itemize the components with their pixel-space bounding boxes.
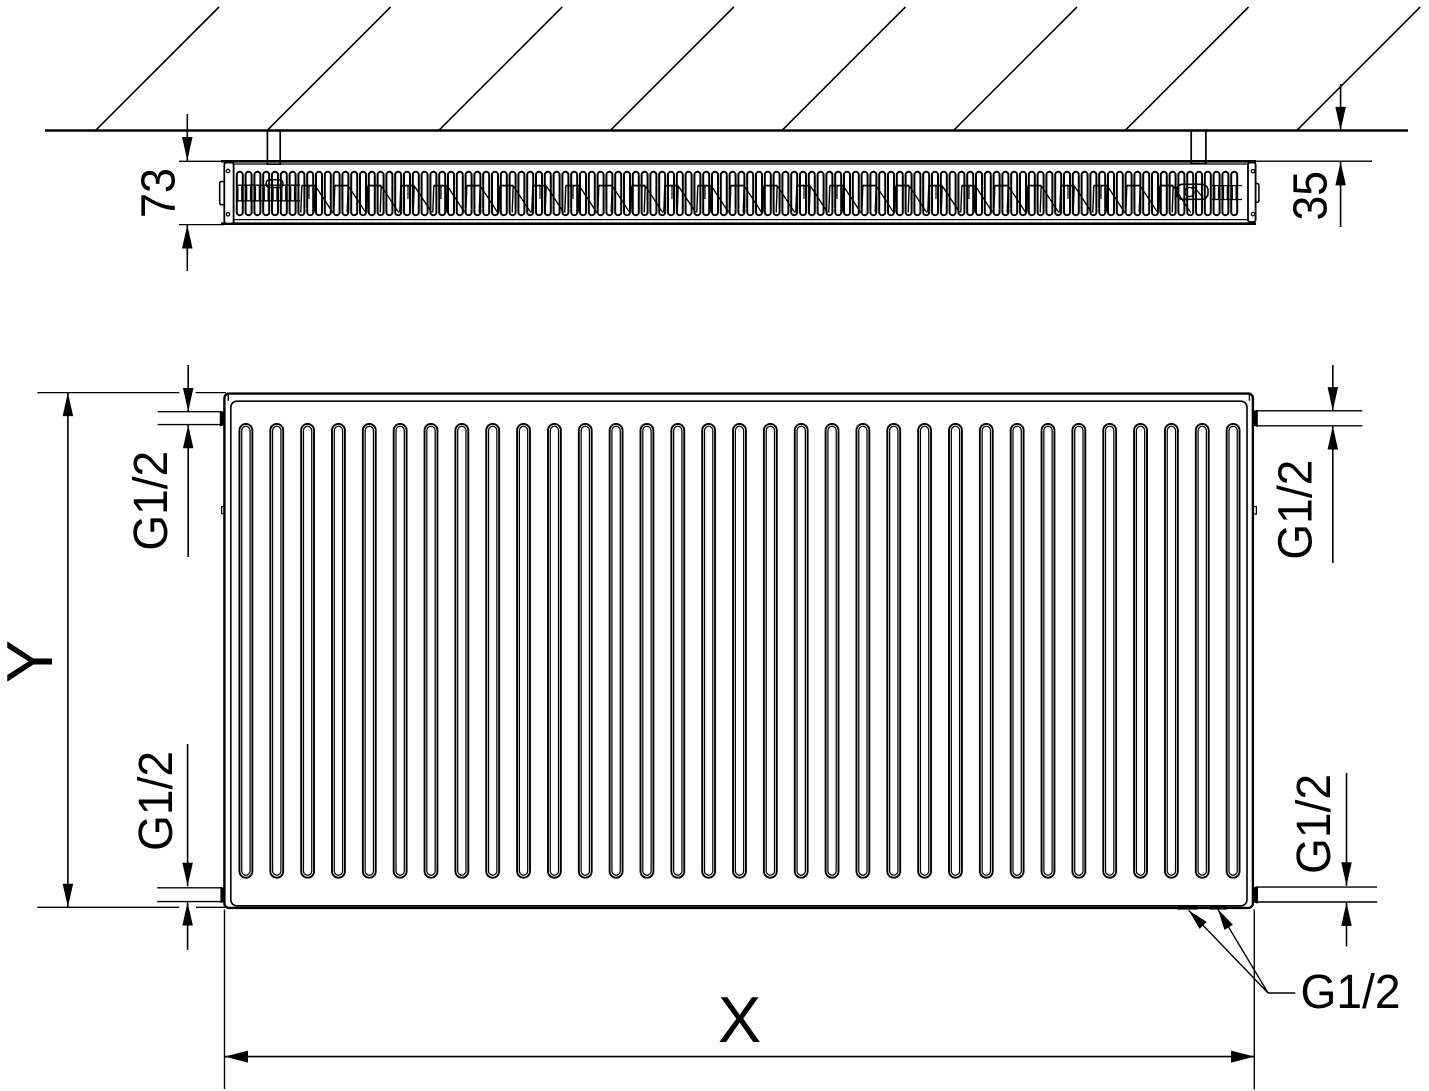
svg-text:G1/2: G1/2 [1301, 965, 1401, 1019]
svg-text:G1/2: G1/2 [1269, 460, 1323, 560]
svg-text:G1/2: G1/2 [129, 751, 183, 851]
svg-text:35: 35 [1283, 171, 1337, 221]
svg-text:X: X [718, 983, 761, 1056]
svg-text:G1/2: G1/2 [124, 451, 178, 551]
svg-text:73: 73 [132, 168, 186, 218]
svg-text:Y: Y [0, 640, 66, 683]
svg-text:G1/2: G1/2 [1287, 774, 1341, 874]
